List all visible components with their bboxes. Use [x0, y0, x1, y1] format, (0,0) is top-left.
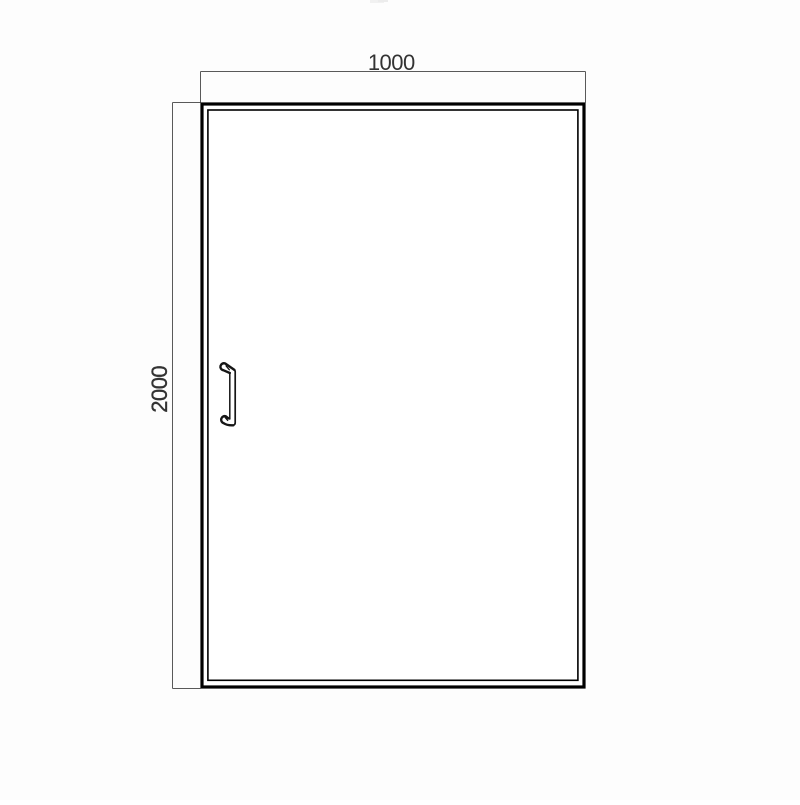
- svg-text:2000: 2000: [147, 366, 172, 413]
- svg-text:1000: 1000: [368, 50, 415, 75]
